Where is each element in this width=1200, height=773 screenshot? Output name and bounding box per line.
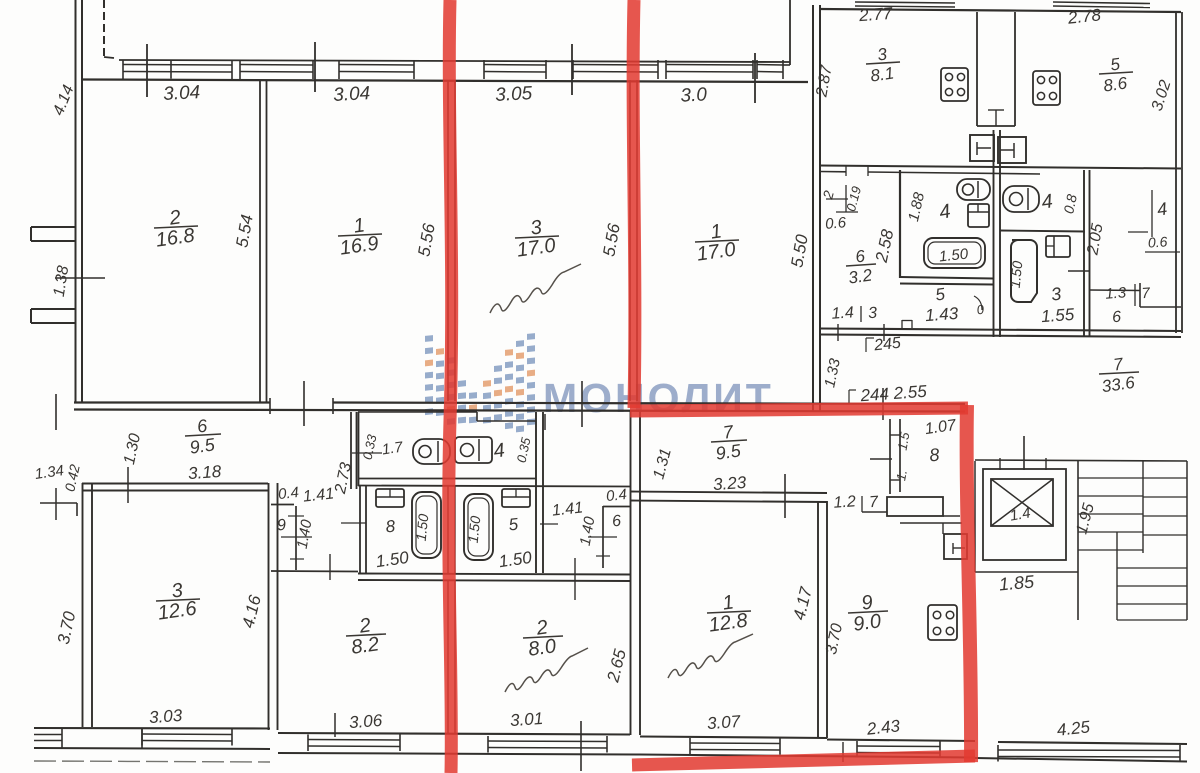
svg-text:0.33: 0.33 [360, 432, 380, 461]
svg-text:3.03: 3.03 [148, 706, 183, 727]
svg-text:2.05: 2.05 [1084, 222, 1106, 257]
svg-text:2.58: 2.58 [872, 227, 898, 265]
svg-text:8.0: 8.0 [527, 635, 558, 661]
svg-text:16.9: 16.9 [338, 232, 380, 259]
svg-text:8.6: 8.6 [1102, 73, 1129, 95]
svg-text:1.50: 1.50 [1007, 260, 1026, 289]
svg-text:4: 4 [1040, 190, 1054, 213]
svg-text:4: 4 [938, 200, 953, 224]
svg-text:4.17: 4.17 [789, 585, 816, 622]
svg-text:6: 6 [611, 513, 622, 531]
svg-text:17.0: 17.0 [695, 238, 737, 265]
svg-text:8: 8 [385, 517, 397, 537]
svg-text:6: 6 [854, 246, 867, 266]
svg-text:0.35: 0.35 [514, 435, 534, 464]
svg-text:16.8: 16.8 [154, 224, 196, 251]
svg-text:9.5: 9.5 [188, 434, 217, 457]
svg-text:1.50: 1.50 [498, 548, 534, 571]
svg-text:2.77: 2.77 [857, 4, 893, 25]
svg-text:4.16: 4.16 [238, 593, 265, 630]
svg-text:8: 8 [928, 445, 940, 466]
svg-text:1.41: 1.41 [302, 485, 335, 505]
svg-text:8.2: 8.2 [350, 633, 381, 659]
svg-text:1.3: 1.3 [1105, 284, 1128, 302]
svg-text:245: 245 [872, 335, 901, 355]
svg-text:1.40: 1.40 [577, 515, 599, 547]
svg-text:0.4: 0.4 [605, 486, 628, 505]
svg-text:0.4: 0.4 [277, 484, 300, 503]
svg-text:244 2.55: 244 2.55 [859, 382, 928, 406]
svg-text:9.5: 9.5 [714, 440, 743, 463]
svg-text:3.23: 3.23 [712, 473, 747, 494]
svg-text:6: 6 [196, 415, 210, 436]
svg-text:1.33: 1.33 [821, 356, 844, 389]
svg-text:3.0: 3.0 [680, 84, 708, 106]
svg-text:5.56: 5.56 [414, 222, 439, 258]
svg-text:2.73: 2.73 [332, 461, 355, 496]
svg-text:5.56: 5.56 [599, 222, 624, 258]
svg-text:1.2: 1.2 [833, 493, 856, 512]
svg-text:1.50: 1.50 [413, 513, 432, 542]
svg-text:8.1: 8.1 [869, 64, 895, 86]
svg-text:2.43: 2.43 [865, 716, 901, 739]
svg-text:3.05: 3.05 [495, 83, 533, 106]
svg-text:4: 4 [1156, 198, 1169, 219]
svg-text:0.6: 0.6 [1147, 233, 1168, 250]
svg-text:4.25: 4.25 [1056, 717, 1091, 739]
svg-text:1.50: 1.50 [465, 515, 484, 544]
svg-text:2.65: 2.65 [603, 647, 630, 685]
svg-text:6: 6 [1112, 309, 1122, 327]
svg-text:5: 5 [934, 284, 947, 304]
svg-text:5.50: 5.50 [787, 233, 812, 269]
svg-text:12.6: 12.6 [156, 597, 198, 624]
svg-text:33.6: 33.6 [1101, 373, 1137, 396]
svg-text:5.54: 5.54 [232, 213, 256, 249]
svg-text:3.04: 3.04 [163, 82, 201, 105]
svg-text:1.55: 1.55 [1040, 305, 1075, 326]
svg-text:3: 3 [1050, 283, 1063, 304]
svg-text:1.4: 1.4 [831, 304, 854, 323]
svg-text:1.40: 1.40 [294, 518, 316, 550]
svg-text:1.: 1. [893, 469, 910, 482]
svg-text:7: 7 [1112, 354, 1125, 374]
svg-text:1.85: 1.85 [998, 571, 1036, 594]
svg-text:3.01: 3.01 [509, 709, 543, 730]
svg-text:1.34: 1.34 [34, 462, 65, 483]
svg-text:1.95: 1.95 [1073, 501, 1098, 536]
svg-text:7: 7 [869, 494, 880, 512]
svg-text:1.88: 1.88 [905, 190, 928, 223]
svg-text:1.43: 1.43 [924, 304, 959, 325]
svg-text:0.42: 0.42 [61, 463, 82, 493]
svg-text:3: 3 [868, 305, 878, 323]
svg-text:2.87: 2.87 [813, 63, 836, 99]
svg-text:9.0: 9.0 [852, 610, 883, 636]
svg-text:3: 3 [876, 44, 889, 64]
svg-text:3.70: 3.70 [54, 609, 80, 646]
svg-text:4.14: 4.14 [50, 83, 77, 118]
svg-text:1.38: 1.38 [51, 264, 73, 298]
svg-text:1.07: 1.07 [924, 417, 958, 438]
svg-text:3.18: 3.18 [187, 462, 222, 483]
svg-text:2.78: 2.78 [1066, 5, 1102, 28]
svg-text:1.5: 1.5 [895, 430, 913, 451]
svg-text:7: 7 [1141, 285, 1151, 303]
svg-text:4: 4 [492, 439, 506, 462]
svg-text:1.31: 1.31 [650, 447, 674, 481]
svg-text:3.02: 3.02 [1149, 78, 1175, 113]
svg-text:17.0: 17.0 [515, 234, 557, 261]
svg-text:1.30: 1.30 [121, 432, 144, 466]
svg-text:1.7: 1.7 [381, 439, 405, 459]
svg-text:5: 5 [1109, 54, 1122, 74]
svg-text:3.04: 3.04 [333, 83, 371, 106]
svg-text:1.41: 1.41 [551, 499, 584, 519]
svg-text:0.6: 0.6 [824, 214, 847, 233]
svg-text:5: 5 [508, 515, 520, 535]
svg-text:12.8: 12.8 [707, 609, 749, 636]
svg-text:1.50: 1.50 [375, 548, 411, 571]
svg-text:3.2: 3.2 [847, 265, 874, 287]
svg-text:3.07: 3.07 [706, 712, 741, 733]
svg-text:0.8: 0.8 [1060, 193, 1080, 216]
svg-text:7: 7 [722, 421, 736, 442]
svg-text:1.50: 1.50 [938, 245, 969, 265]
svg-text:3.06: 3.06 [348, 711, 383, 732]
svg-text:1.4: 1.4 [1008, 504, 1031, 524]
